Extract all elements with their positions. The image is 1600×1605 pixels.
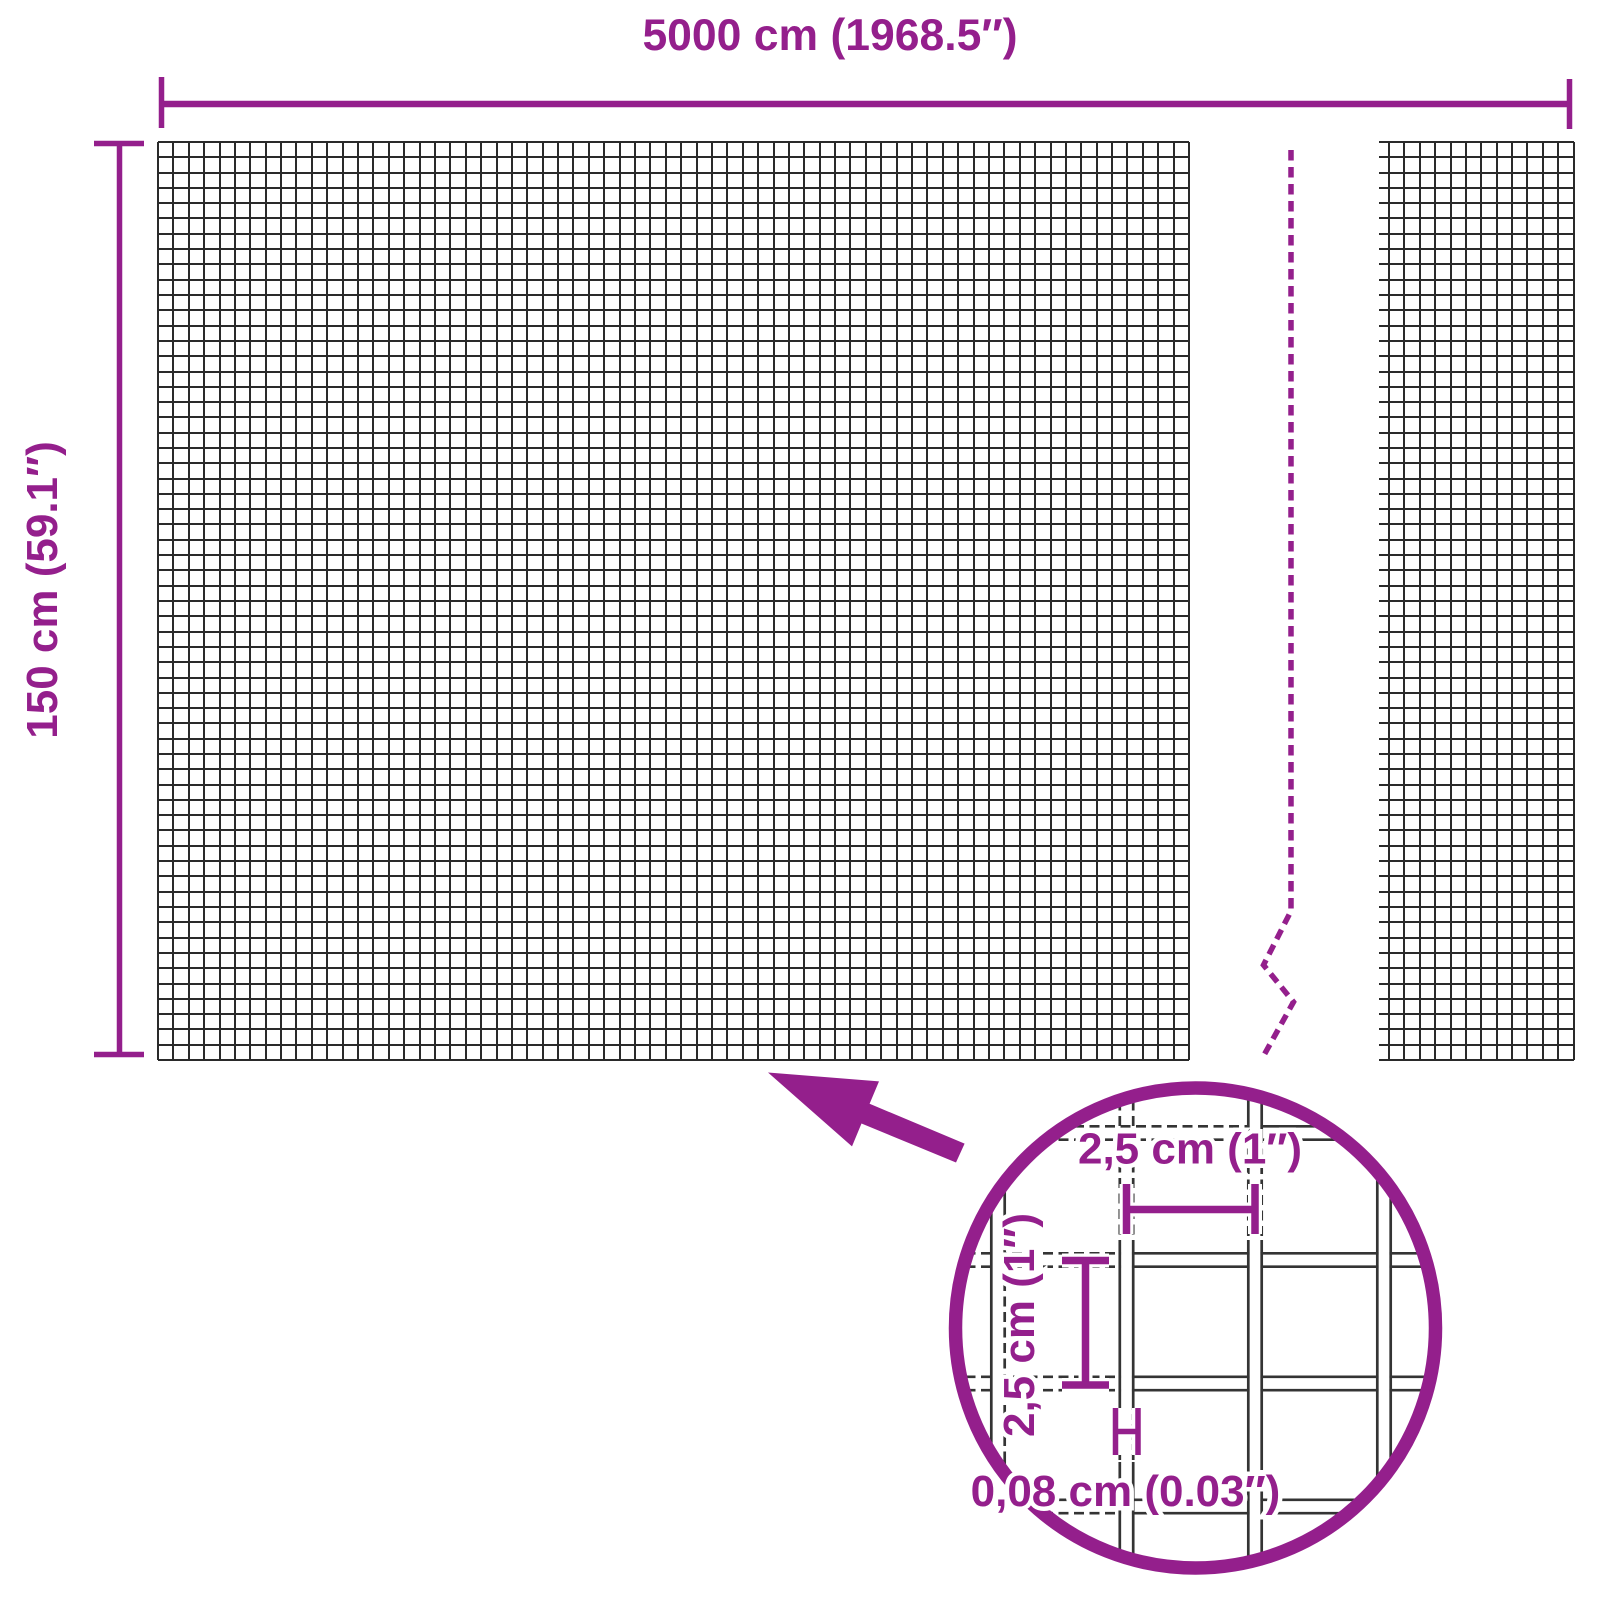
svg-text:2,5 cm (1″): 2,5 cm (1″) bbox=[995, 1213, 1044, 1437]
svg-text:2,5 cm (1″): 2,5 cm (1″) bbox=[1078, 1125, 1302, 1174]
svg-text:5000 cm (1968.5″): 5000 cm (1968.5″) bbox=[642, 11, 1017, 60]
svg-text:0,08 cm (0.03″): 0,08 cm (0.03″) bbox=[971, 1467, 1281, 1516]
svg-text:150 cm (59.1″): 150 cm (59.1″) bbox=[18, 441, 67, 738]
